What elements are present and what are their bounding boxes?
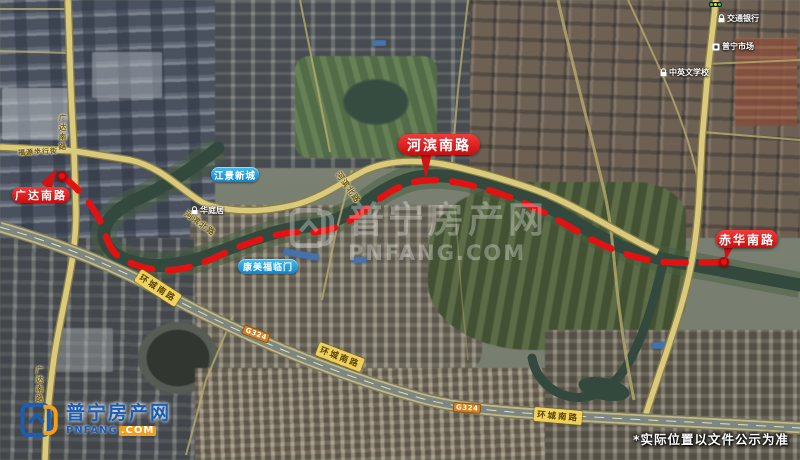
disclaimer-text: *实际位置以文件公示为准	[633, 429, 789, 448]
logo-domain-text: PNFANG .COM	[66, 426, 171, 436]
poi-label: 华庭居	[200, 205, 224, 216]
logo-house-icon	[19, 398, 61, 442]
logo-brand-text: 普宁房产网	[66, 404, 171, 423]
poi-huatingju: 华庭居	[191, 205, 224, 216]
satellite-map: 广达南路 广达南路 河滨北路 河滨北路 福源步行街 环城南路 环城南路 环城南路…	[0, 0, 800, 460]
route-shield-g324-2: G324	[453, 402, 482, 414]
market-icon	[712, 43, 720, 51]
poi-school: 中英文学校	[660, 67, 709, 78]
site-logo: 普宁房产网 PNFANG .COM	[19, 398, 171, 442]
lock-icon	[191, 206, 198, 215]
logo-domain-tld: .COM	[119, 426, 157, 436]
road-label-fuyuan-street: 福源步行街	[18, 146, 58, 158]
road-label-guangda-nanlu: 广达南路	[57, 114, 68, 152]
logo-domain-name: PNFANG	[66, 426, 118, 436]
river-branch-south	[532, 260, 664, 398]
poi-label: 交通银行	[727, 13, 759, 24]
poi-bank: 交通银行	[718, 13, 759, 24]
poi-label: 普宁市场	[722, 41, 754, 52]
traffic-light-icon	[709, 2, 722, 7]
lock-icon	[660, 68, 667, 77]
route-marker-guangda-nanlu: 广达南路	[12, 187, 70, 203]
poi-market: 普宁市场	[712, 41, 754, 52]
poi-pill-jiangjing-xincheng: 江景新城	[211, 167, 259, 182]
lock-icon	[718, 14, 725, 23]
route-marker-hebin-nanlu: 河滨南路	[398, 134, 480, 155]
poi-pill-kangmei-fulinmen: 康美福临门	[238, 259, 298, 274]
route-marker-chihua-nanlu: 赤华南路	[716, 230, 778, 248]
marker-tail-center	[420, 152, 432, 180]
poi-label: 中英文学校	[669, 67, 709, 78]
